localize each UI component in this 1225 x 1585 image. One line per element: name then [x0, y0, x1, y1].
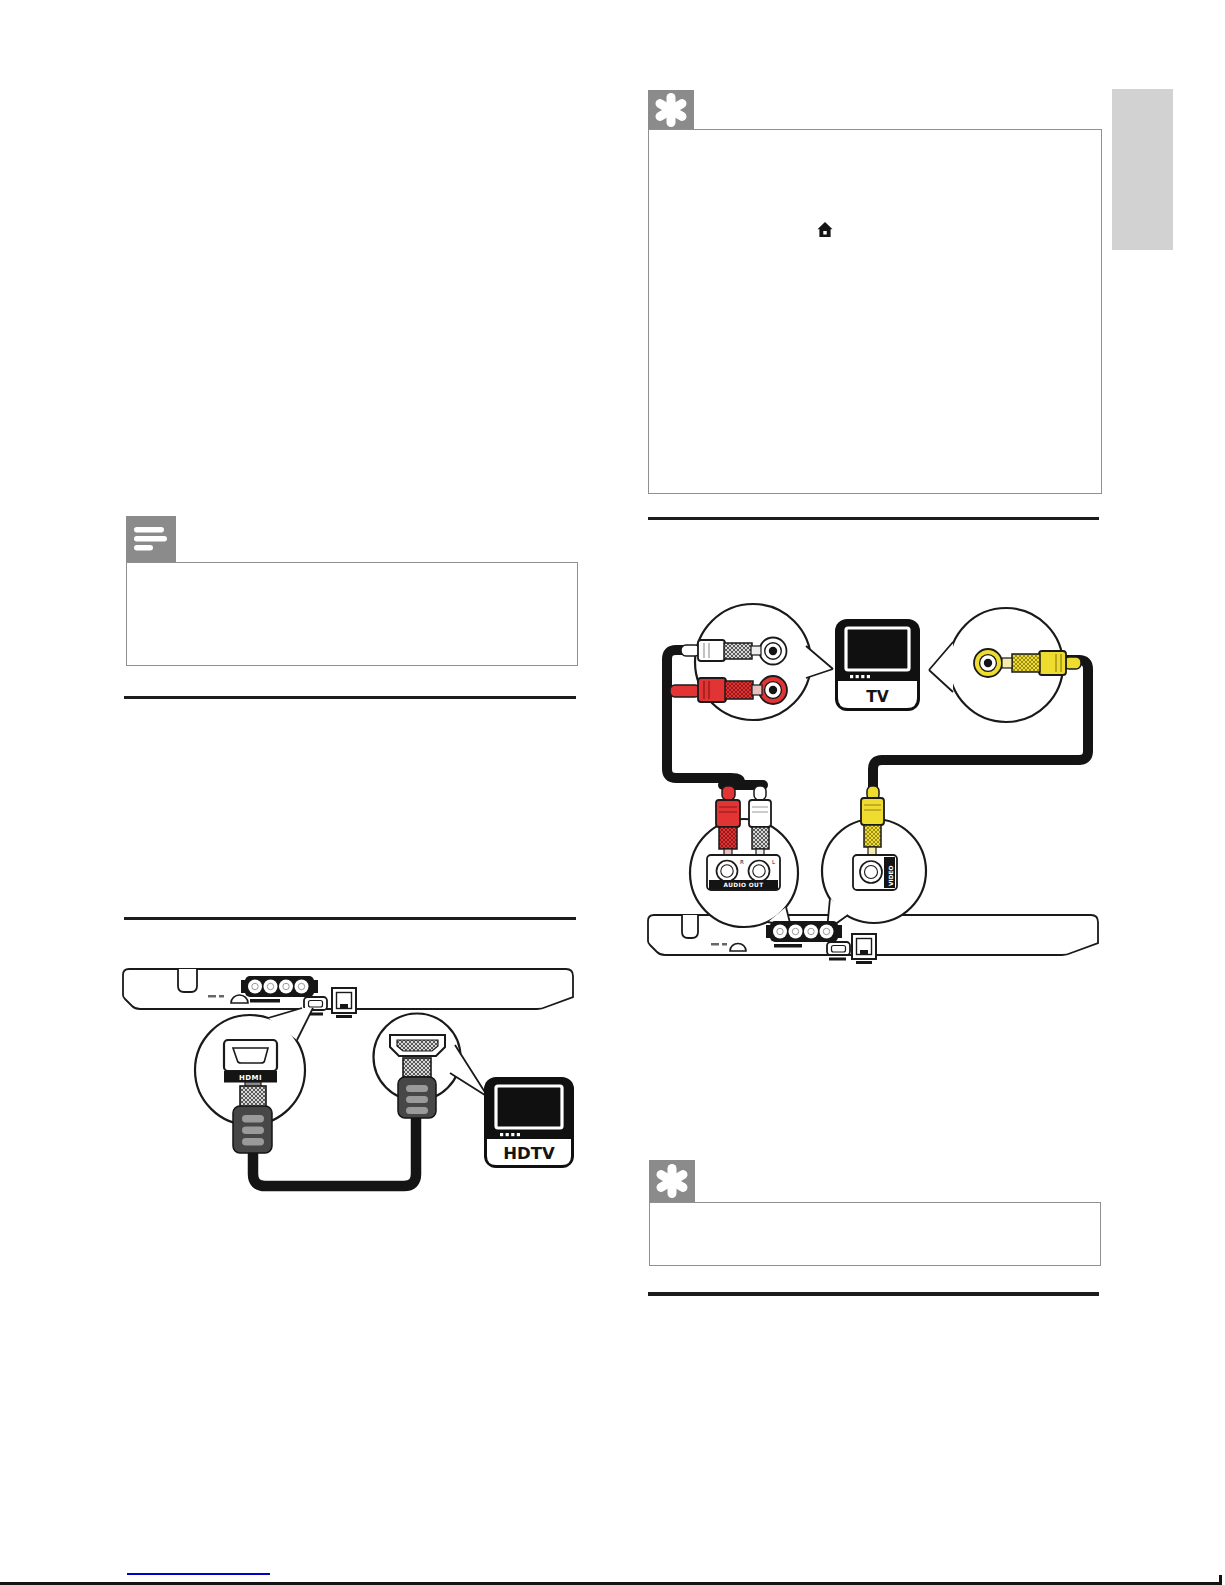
lan-port — [852, 934, 876, 964]
hdmi-connection-diagram: HDMI — [110, 950, 580, 1240]
tip-box-top — [648, 129, 1102, 494]
rca-plug-red — [716, 786, 740, 858]
callout-tv-video-in — [929, 608, 1081, 722]
audio-out-label: AUDIO OUT — [723, 882, 763, 888]
panel-marking — [219, 995, 224, 998]
hdtv-box: HDTV — [484, 1077, 574, 1168]
rca-plug-white — [749, 786, 771, 858]
section-divider-right-top — [648, 517, 1099, 520]
tv-jack-yellow — [974, 649, 1002, 677]
asterisk-icon — [649, 1160, 695, 1202]
audio-out-panel: R L AUDIO OUT — [707, 855, 780, 890]
tv-screen — [496, 1086, 562, 1128]
note-lines-icon — [126, 516, 176, 562]
callout-tv-audio-in — [670, 604, 833, 720]
panel-marking — [711, 943, 719, 946]
vent-notch — [178, 969, 197, 992]
av-connection-diagram: R L AUDIO OUT VIDEO — [630, 595, 1110, 965]
disc-tray-mark — [730, 944, 746, 952]
note-icon — [126, 516, 176, 562]
home-icon — [817, 221, 833, 239]
hdmi-cable — [253, 1118, 416, 1186]
section-divider-left-1 — [124, 696, 576, 699]
page-edge-tab — [1112, 89, 1173, 250]
tv-box: TV — [835, 619, 920, 711]
tip-asterisk-icon — [648, 90, 694, 130]
tip-box-bottom — [649, 1202, 1101, 1266]
player-rear-panel — [123, 969, 573, 1018]
section-divider-left-2 — [124, 917, 576, 920]
tv-screen — [846, 628, 909, 670]
rca-plug-white — [681, 640, 761, 661]
callout-audio-out: R L AUDIO OUT — [690, 786, 798, 927]
tv-label: TV — [866, 688, 889, 706]
note-box — [126, 562, 578, 666]
panel-marking — [208, 995, 216, 998]
tv-jack-red — [759, 676, 787, 704]
rca-plug-yellow — [1002, 651, 1081, 675]
section-divider-right-bottom — [648, 1292, 1099, 1296]
rca-plug-red — [670, 678, 762, 702]
panel-marking — [722, 943, 727, 946]
lan-port — [332, 988, 356, 1018]
manual-page: HDMI — [0, 0, 1225, 1585]
hdtv-label: HDTV — [503, 1144, 555, 1163]
tv-jack-white — [760, 638, 787, 665]
vent-notch — [682, 915, 698, 938]
hdmi-socket-label: HDMI — [239, 1074, 262, 1082]
callout-hdmi-socket: HDMI — [195, 1008, 313, 1153]
hdmi-port — [827, 942, 850, 961]
page-corner-tick — [1219, 1575, 1222, 1585]
video-label: VIDEO — [888, 866, 894, 886]
jack-label-r: R — [740, 859, 744, 865]
hyperlink-underline[interactable] — [127, 1573, 270, 1575]
hdmi-plug — [398, 1058, 436, 1118]
callout-video: VIDEO — [822, 786, 926, 930]
rca-plug-yellow — [861, 786, 884, 856]
callout-hdmi-plug — [374, 1014, 489, 1119]
video-panel: VIDEO — [853, 855, 897, 890]
asterisk-icon — [648, 90, 694, 130]
tip-asterisk-icon — [649, 1160, 695, 1202]
